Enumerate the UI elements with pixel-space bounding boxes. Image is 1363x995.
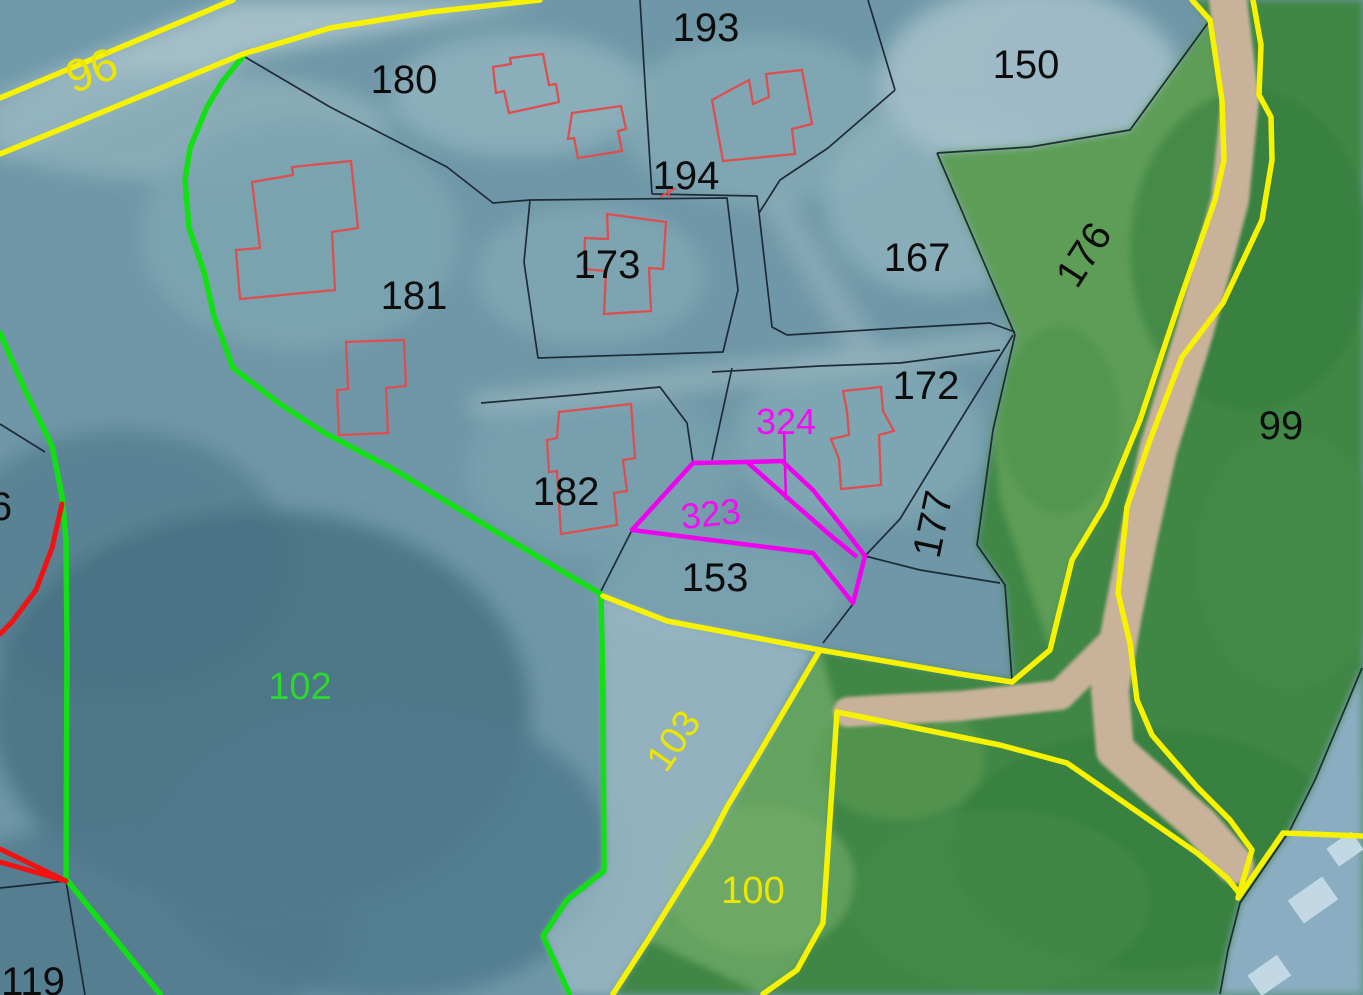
parcel-label-323: 323 xyxy=(679,490,743,537)
cadastral-map: 9618019315019417316717618117299324182323… xyxy=(0,0,1363,995)
parcel-label-99: 99 xyxy=(1259,404,1304,448)
parcel-label-324: 324 xyxy=(756,401,816,442)
parcel-label-182: 182 xyxy=(533,470,600,514)
parcel-label-153: 153 xyxy=(682,556,749,600)
parcel-label-100: 100 xyxy=(721,870,784,912)
parcel-label-119: 119 xyxy=(1,960,65,995)
parcel-label-173: 173 xyxy=(574,243,641,287)
map-canvas[interactable]: 9618019315019417316717618117299324182323… xyxy=(0,0,1363,995)
parcel-label-194: 194 xyxy=(653,154,720,198)
parcel-label-102: 102 xyxy=(268,666,331,708)
parcel-label-180: 180 xyxy=(371,58,438,102)
parcel-label-167: 167 xyxy=(884,236,951,280)
parcel-label-193: 193 xyxy=(673,6,740,50)
parcel-label-6: 6 xyxy=(0,485,12,529)
parcel-label-172: 172 xyxy=(893,364,960,408)
parcel-label-181: 181 xyxy=(381,274,448,318)
parcel-label-150: 150 xyxy=(993,43,1060,87)
